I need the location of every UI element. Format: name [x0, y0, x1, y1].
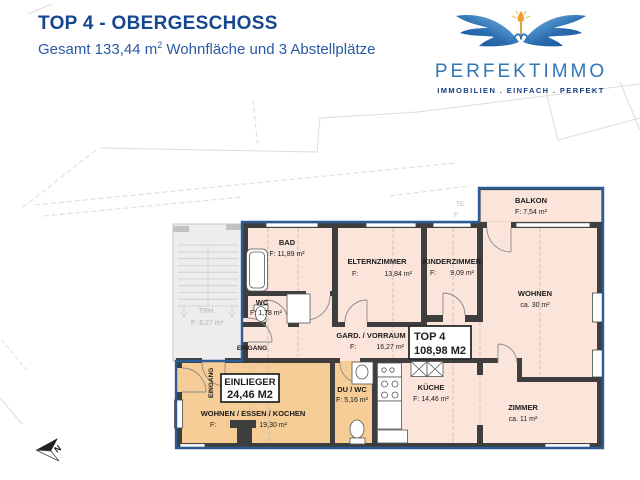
subtitle-part2: Wohnfläche und 3 Abstellplätze — [162, 41, 375, 58]
wings-crest-icon — [446, 8, 596, 60]
label-du-wc-name: DU / WC — [337, 385, 367, 394]
label-kinderzimmer-area-value: 9,09 m² — [450, 270, 474, 277]
background-text-terrasse: TE — [456, 201, 465, 208]
label-kinderzimmer-area-f: F: — [430, 270, 436, 277]
label-kueche-area: F: 14,46 m² — [413, 396, 449, 403]
label-bad-area: F: 11,89 m² — [269, 251, 305, 258]
label-wek-name: WOHNEN / ESSEN / KOCHEN — [201, 409, 306, 418]
company-logo: PERFEKTIMMO IMMOBILIEN . EINFACH . PERFE… — [416, 8, 626, 95]
floorplan-page: TE F: TRH. F: 6,27 m² — [0, 0, 640, 480]
label-elternzimmer-area-value: 13,84 m² — [384, 271, 412, 278]
brand-tagline: IMMOBILIEN . EINFACH . PERFEKT — [416, 86, 626, 95]
badge-top4-line2: 108,98 M2 — [414, 345, 466, 357]
badge-top4-line1: TOP 4 — [414, 331, 446, 343]
label-zimmer-area: ca. 11 m² — [509, 416, 538, 423]
badge-einlieger-line1: EINLIEGER — [224, 377, 275, 388]
label-eingang-main: EINGANG — [237, 345, 267, 352]
label-balkon-area: F: 7,54 m² — [515, 209, 548, 216]
wardrobe-icon — [411, 362, 443, 377]
label-balkon-name: BALKON — [515, 196, 547, 205]
badge-top4: TOP 4 108,98 M2 — [409, 326, 471, 359]
north-arrow-label: N — [52, 443, 63, 455]
label-du-wc-area: F: 5,16 m² — [336, 397, 369, 404]
north-arrow-icon: N — [36, 438, 63, 461]
label-zimmer-name: ZIMMER — [508, 403, 538, 412]
background-text-f: F: — [454, 212, 460, 219]
staircase: TRH. F: 6,27 m² — [173, 224, 242, 361]
badge-einlieger: EINLIEGER 24,46 M2 — [221, 374, 279, 402]
label-trh-name: TRH. — [199, 308, 215, 315]
label-wek-area-f: F: — [210, 422, 216, 429]
label-kinderzimmer-name: KINDERZIMMER — [423, 257, 482, 266]
label-wc-name: WC — [256, 298, 269, 307]
label-wc-area: F: 1,78 m² — [250, 310, 283, 317]
label-wohnen-name: WOHNEN — [518, 289, 552, 298]
label-gard-vorraum-area-f: F: — [350, 344, 356, 351]
toilet-icon — [350, 420, 364, 438]
stove-icon — [378, 377, 402, 401]
subtitle-part1: Gesamt 133,44 m — [38, 41, 157, 58]
label-wek-area-value: 19,30 m² — [259, 422, 287, 429]
page-subtitle: Gesamt 133,44 m2 Wohnfläche und 3 Abstel… — [38, 40, 375, 58]
label-eingang-side: EINGANG — [208, 368, 215, 398]
badge-einlieger-line2: 24,46 M2 — [227, 389, 273, 401]
label-kueche-name: KÜCHE — [418, 383, 445, 392]
label-elternzimmer-name: ELTERNZIMMER — [347, 257, 407, 266]
brand-name: PERFEKTIMMO — [416, 61, 626, 83]
label-wohnen-area: ca. 30 m² — [520, 302, 550, 309]
closet-icon — [287, 294, 310, 323]
label-elternzimmer-area-f: F: — [352, 271, 358, 278]
label-bad-name: BAD — [279, 238, 296, 247]
page-title: TOP 4 - OBERGESCHOSS — [38, 13, 278, 35]
label-gard-vorraum-area-value: 16,27 m² — [376, 344, 404, 351]
label-trh-area: F: 6,27 m² — [191, 320, 224, 327]
counter-icon — [378, 401, 402, 429]
label-gard-vorraum-name: GARD. / VORRAUM — [336, 331, 405, 340]
